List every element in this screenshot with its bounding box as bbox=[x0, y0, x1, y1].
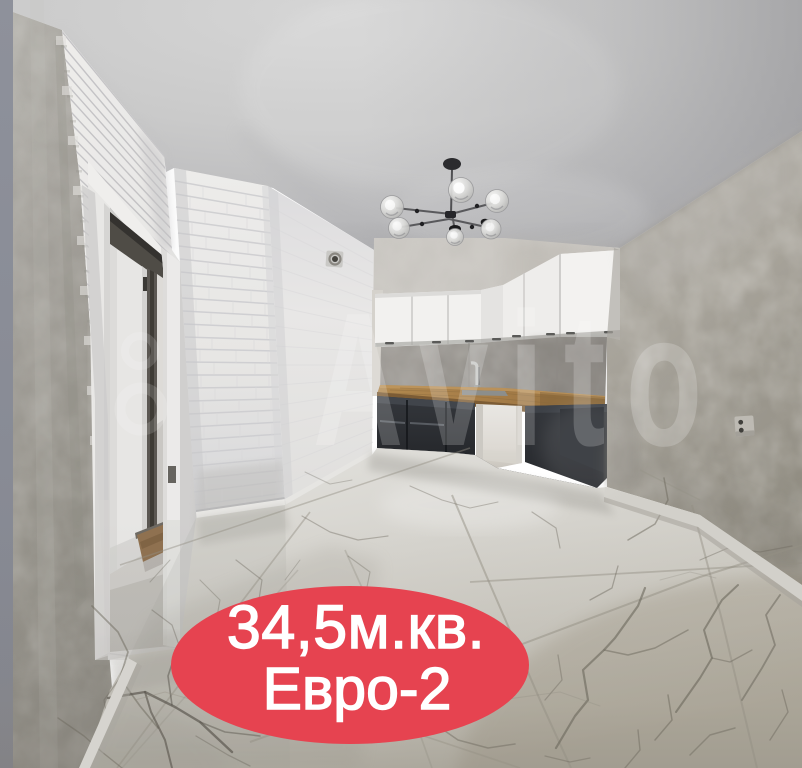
svg-text:34,5м.кв.: 34,5м.кв. bbox=[227, 593, 485, 661]
svg-text:Евро-2: Евро-2 bbox=[263, 656, 452, 722]
